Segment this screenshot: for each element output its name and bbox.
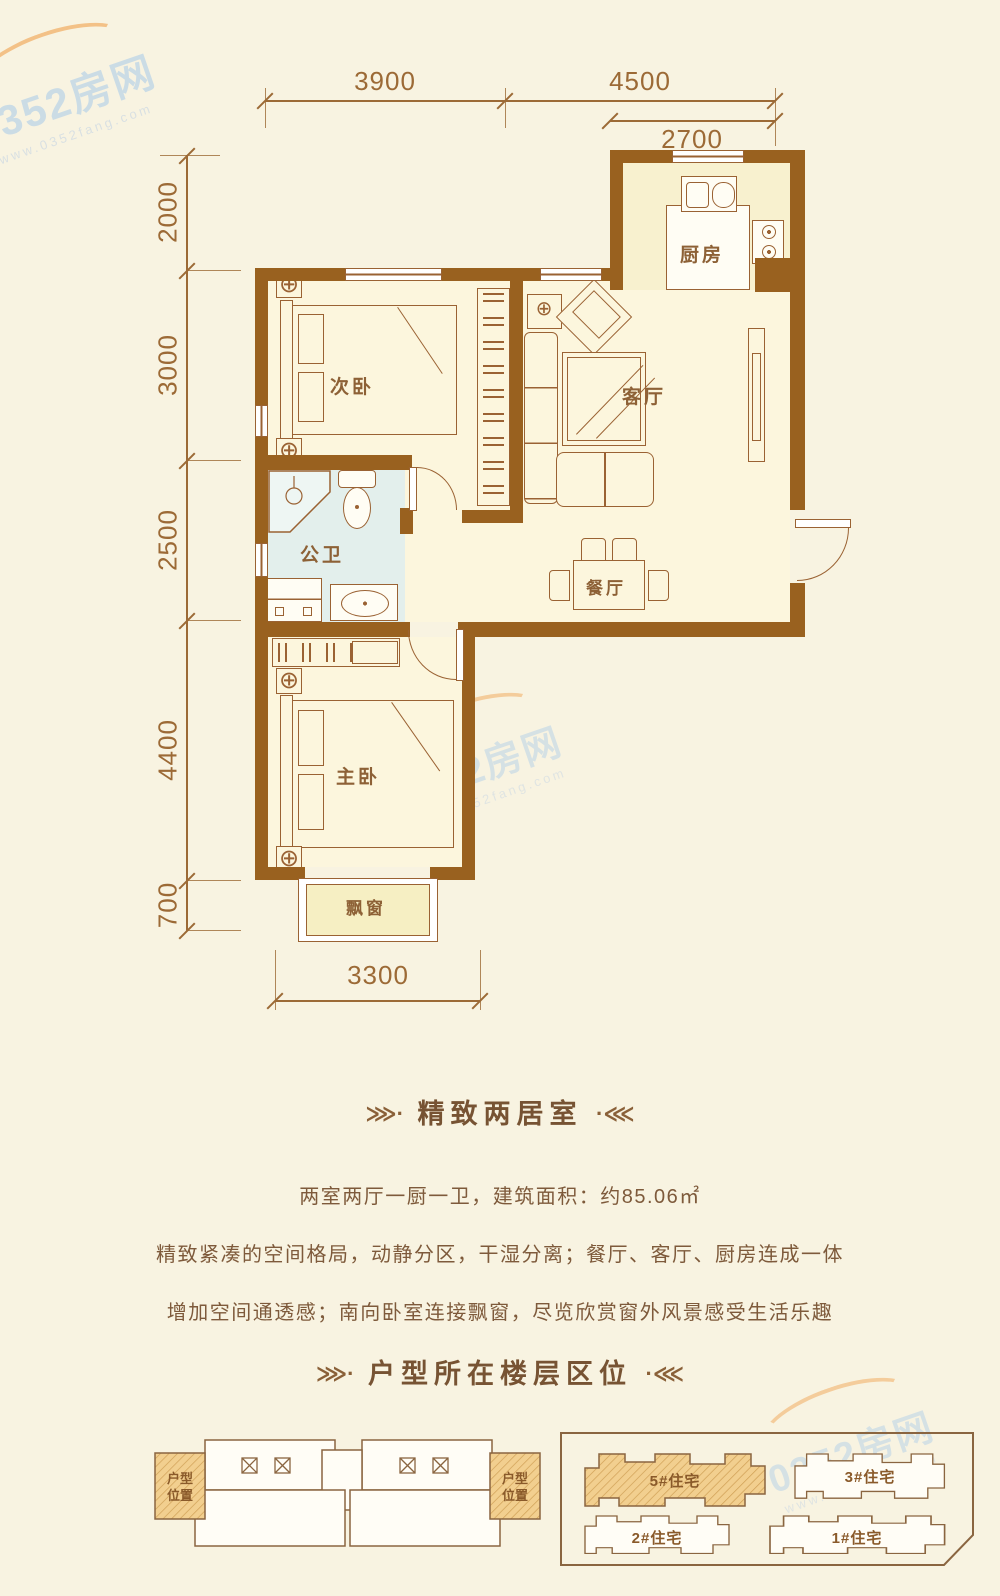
- dim-left-3000: 3000: [153, 334, 184, 396]
- unit-title-text: 精致两居室: [418, 1099, 583, 1129]
- bath-toilet-bowl: [343, 487, 371, 529]
- unit-location-label: 位置: [167, 1488, 193, 1503]
- room-label-bay: 飘窗: [346, 894, 386, 919]
- bath-vanity: [330, 584, 398, 621]
- floor-plate-diagram: 户型 位置 户型 位置: [150, 1438, 550, 1563]
- room-label-bath: 公卫: [300, 540, 344, 567]
- location-title-text: 户型所在楼层区位: [368, 1359, 632, 1389]
- living-loveseat: [556, 452, 654, 507]
- master-pillow: [298, 774, 324, 830]
- unit-summary: 两室两厅一厨一卫，建筑面积：约85.06㎡: [0, 1180, 1000, 1209]
- building-2-label: 2#住宅: [632, 1529, 683, 1547]
- dim-bottom-3300: 3300: [328, 960, 428, 991]
- living-sofa: [524, 332, 558, 504]
- dim-left-2500: 2500: [153, 509, 184, 571]
- wall: [255, 455, 412, 470]
- window: [255, 543, 268, 577]
- floorplan-page: 0352房网 www.0352fang.com 0352房网 www.0352f…: [0, 0, 1000, 1596]
- dim-line: [265, 100, 775, 102]
- dining-chair: [612, 538, 637, 561]
- section-title-location: ⋙· 户型所在楼层区位 ·⋘: [0, 1352, 1000, 1391]
- master-pillow: [298, 710, 324, 766]
- wall: [255, 622, 410, 637]
- wing-upper-right: [362, 1440, 492, 1490]
- dim-left-2000: 2000: [153, 181, 184, 243]
- entry-door-leaf: [795, 519, 851, 528]
- watermark-brand: 0352房网: [0, 38, 163, 157]
- dim-ext: [186, 460, 241, 461]
- wall: [400, 508, 413, 534]
- room-label-living: 客厅: [622, 382, 666, 409]
- entry-door-swing: [797, 528, 849, 581]
- bath-door-leaf: [409, 467, 417, 511]
- section-title-unit: ⋙· 精致两居室 ·⋘: [0, 1092, 1000, 1131]
- master-nightstand: ⊕: [276, 668, 302, 694]
- ornament-left-icon: ⋙·: [316, 1361, 355, 1386]
- watermark: 0352房网 www.0352fang.com: [0, 2, 168, 171]
- dim-ext: [160, 155, 220, 156]
- sink-basin: [712, 182, 735, 208]
- dim-top-2700: 2700: [642, 124, 742, 155]
- bath-cabinet: [266, 578, 322, 622]
- window: [255, 405, 268, 437]
- dim-top-3900: 3900: [335, 66, 435, 97]
- room-label-master: 主卧: [336, 762, 380, 789]
- wing-lower-left: [195, 1490, 345, 1546]
- wing-upper-left: [205, 1440, 335, 1490]
- living-tv-cabinet: [748, 328, 765, 462]
- master-closet-shelf: [352, 641, 398, 664]
- dim-ext: [265, 88, 266, 128]
- bed2-pillow: [298, 372, 324, 422]
- unit-location-label: 户型: [502, 1471, 528, 1486]
- dim-line: [275, 1000, 480, 1002]
- dim-top-4500: 4500: [590, 66, 690, 97]
- building-1-label: 1#住宅: [832, 1529, 883, 1547]
- room-label-kitchen: 厨房: [680, 240, 724, 267]
- kitchen-sink: [681, 176, 737, 212]
- dim-ext: [186, 930, 241, 931]
- dim-left-700: 700: [153, 882, 184, 928]
- dim-line: [610, 120, 775, 122]
- window: [540, 268, 602, 281]
- wall: [458, 622, 805, 637]
- building-3-label: 3#住宅: [845, 1468, 896, 1486]
- wall: [462, 510, 523, 523]
- dim-left-4400: 4400: [153, 719, 184, 781]
- dining-chair: [581, 538, 606, 561]
- building-5-label: 5#住宅: [650, 1472, 701, 1490]
- dining-chair: [648, 570, 669, 601]
- bath-shower: [268, 470, 332, 534]
- vanity-basin: [341, 590, 389, 617]
- ornament-right-icon: ·⋘: [646, 1361, 685, 1386]
- unit-highlight-left: [155, 1453, 205, 1519]
- stove-burner: [762, 225, 776, 239]
- master-door-leaf: [456, 629, 464, 681]
- unit-location-label: 户型: [167, 1471, 193, 1486]
- stove-burner: [762, 245, 776, 259]
- unit-location-label: 位置: [502, 1488, 528, 1503]
- toilet-dot: [355, 505, 359, 509]
- wall: [610, 150, 623, 290]
- ornament-right-icon: ·⋘: [596, 1101, 635, 1126]
- bed2-pillow: [298, 314, 324, 364]
- site-plan: 5#住宅 3#住宅 2#住宅 1#住宅: [560, 1432, 975, 1567]
- armchair-seat: [572, 290, 621, 339]
- wall: [510, 281, 523, 510]
- unit-description-line: 精致紧凑的空间格局，动静分区，干湿分离；餐厅、客厅、厨房连成一体: [0, 1238, 1000, 1267]
- unit-description-line: 增加空间通透感；南向卧室连接飘窗，尽览欣赏窗外风景感受生活乐趣: [0, 1296, 1000, 1325]
- window: [345, 268, 442, 281]
- watermark-url: www.0352fang.com: [0, 96, 168, 172]
- wing-lower-right: [350, 1490, 500, 1546]
- room-label-bedroom2: 次卧: [330, 372, 374, 399]
- sink-basin: [686, 182, 709, 208]
- living-lamp: ⊕: [532, 299, 556, 323]
- dim-ext: [505, 88, 506, 128]
- cabinet-drawer: [303, 607, 312, 616]
- dim-ext: [186, 880, 241, 881]
- watermark-swoosh-icon: [0, 7, 135, 113]
- cabinet-drawer: [275, 607, 284, 616]
- unit-highlight-right: [490, 1453, 540, 1519]
- dim-ext: [186, 270, 241, 271]
- dim-ext: [186, 620, 241, 621]
- bed2-wardrobe: [477, 288, 510, 506]
- wall: [790, 150, 805, 510]
- room-label-dining: 餐厅: [586, 574, 626, 599]
- wall: [755, 258, 790, 292]
- dining-chair: [549, 570, 570, 601]
- tv-panel: [752, 353, 761, 441]
- bath-toilet-tank: [338, 470, 376, 488]
- ornament-left-icon: ⋙·: [365, 1101, 404, 1126]
